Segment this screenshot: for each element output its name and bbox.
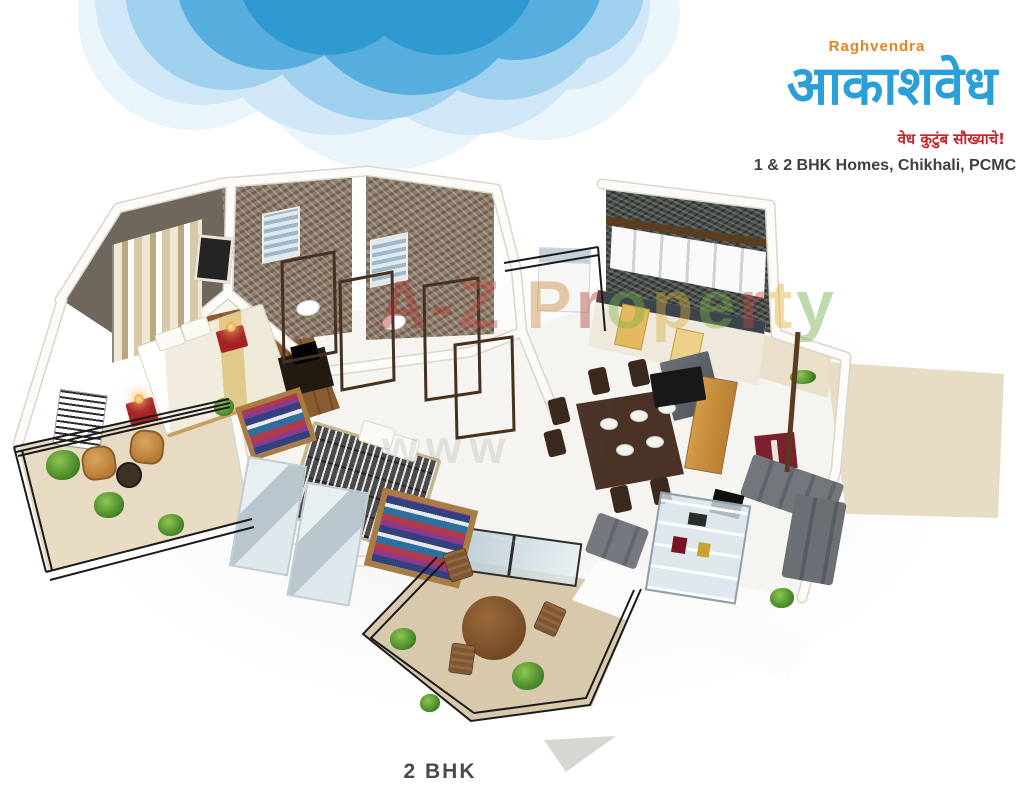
logo-title-devanagari: आकाशवेध bbox=[766, 46, 1018, 120]
terrace-post bbox=[787, 332, 798, 472]
shower-glass-frame bbox=[282, 252, 336, 362]
watermark-url-text: www bbox=[382, 420, 513, 474]
brochure-page: { "header": { "brand": "Raghvendra", "lo… bbox=[0, 0, 1023, 793]
logo-tagline: वेध कुटुंब सौख्याचे! bbox=[755, 129, 1005, 149]
left-balcony-railing bbox=[14, 399, 230, 456]
watermark-text: A-Z Property bbox=[378, 266, 838, 344]
plan-type-label: 2 BHK bbox=[380, 760, 500, 784]
terrace-railing bbox=[363, 557, 641, 721]
project-subtitle: 1 & 2 BHK Homes, Chikhali, PCMC bbox=[752, 157, 1018, 175]
